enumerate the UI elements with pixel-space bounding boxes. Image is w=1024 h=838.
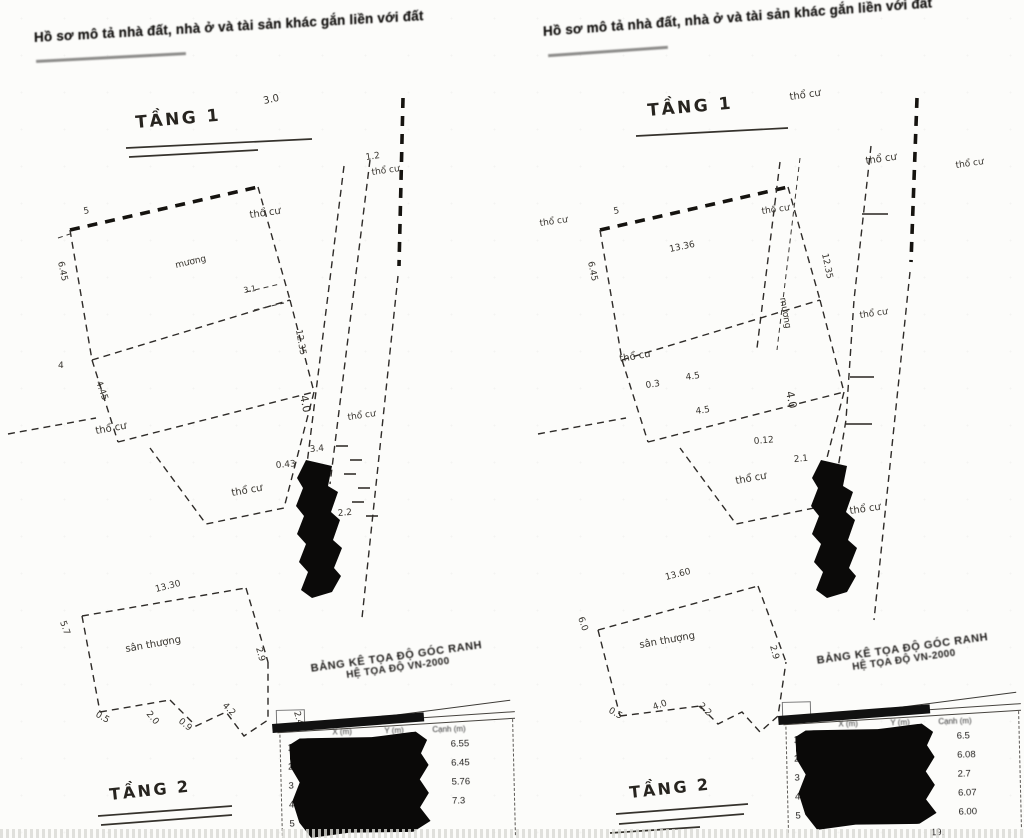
dimension-label: 4.0 [297,394,313,414]
parcel-edge [150,392,314,524]
dimension-label: 3.1 [243,284,257,295]
dimension-label: 4.0 [652,698,669,712]
parcel-edge [600,187,788,230]
terrace-edge [598,586,758,630]
edge-length-value: 6.55 [451,737,513,750]
parcel-edge [820,300,844,392]
column-header-edge: Cạnh (m) [938,716,972,726]
dimension-label: 13.36 [669,240,697,255]
dimension-label: 3.0 [262,93,280,107]
floor1-left-drawing: TẦNG 1 53.0thổ cư1.2thổ cưmương3.16.4544… [8,93,403,618]
dimension-label: 13.30 [154,579,182,595]
dimension-label: 0.43 [275,459,296,471]
parcel-edge [600,230,622,360]
parcel-edge [622,360,648,442]
road-line [330,160,370,484]
title-underline [636,128,788,136]
dimension-label: 5 [613,206,620,217]
area-label: sân thượng [638,629,695,651]
floor-title: TẦNG 1 [134,102,221,133]
floor1-left-labels: 53.0thổ cư1.2thổ cưmương3.16.4544.454.01… [55,93,402,519]
floor2-right-labels: 13.606.0sân thượng0.54.02.22.9 [575,567,780,722]
dimension-label: 4.0 [783,390,799,410]
title-underline [619,814,744,824]
terrace-step-edge [700,662,786,732]
boundary-stub [58,234,70,238]
dimension-label: 3.4 [309,444,324,455]
dimension-label: 6.0 [575,616,589,633]
parcel-edge [70,230,92,360]
edge-length-value: 6.07 [958,786,1020,799]
road-bold-line [399,98,403,266]
floor1-right-labels: 5thổ cư13.36thổ cưthổ cưthổ cưmương6.450… [539,86,986,517]
dimension-label: 4.45 [93,380,109,402]
terrace-edge [598,630,620,716]
dimension-label: 4.5 [695,405,711,417]
parcel-edge [118,392,314,442]
land-use-label: thổ cư [849,500,883,517]
edge-length-value: 6.00 [958,805,1020,818]
redaction-blob [795,723,939,831]
edge-length-value: 6.5 [957,729,1019,742]
dimension-label: 0.5 [607,706,624,722]
edge-length-value: 7.3 [452,794,514,807]
table-box: X (m) Y (m) Cạnh (m) 1 6.55 2 6.45 3 5.7… [279,719,516,838]
boundary-extension [538,418,626,434]
dimension-label: 5.7 [57,620,71,637]
redaction-blob [811,460,857,598]
area-label: sân thượng [124,633,181,655]
dimension-label: 12.35 [293,329,307,356]
land-use-label: thổ cư [859,306,890,321]
dimension-label: 13.60 [664,567,692,583]
land-use-label: thổ cư [230,481,264,499]
land-use-label: thổ cư [955,156,986,171]
table-box: X (m) Y (m) Cạnh (m) 1 6.5 2 6.08 3 2.7 [785,711,1022,833]
road-bold-line [911,98,917,262]
dimension-label: 0.3 [645,379,661,391]
road-line [838,146,871,468]
terrace-edge [100,700,170,712]
dimension-label: 6.45 [585,261,599,283]
dimension-label: 1.2 [365,151,381,163]
parcel-edge [70,187,258,230]
land-use-label: thổ cư [734,469,768,487]
terrace-edge [82,616,100,712]
parcel-edge [648,392,844,442]
land-use-label: thổ cư [789,86,823,103]
edge-length-value: 5.76 [451,775,513,788]
land-use-label: thổ cư [371,163,402,178]
road-line [306,166,344,472]
title-underline [616,804,748,814]
column-header-x: X (m) [838,719,858,728]
dimension-label: 4.5 [685,371,701,383]
land-use-label: thổ cư [347,408,378,423]
floor-title: TẦNG 2 [628,773,711,802]
title-underline [129,150,258,157]
parcel-edge [92,300,290,360]
dimension-label: 0.9 [176,717,194,734]
road-line [362,276,398,618]
edge-length-value: 2.7 [957,767,1019,780]
edge-length-value: 6.45 [451,756,513,769]
dimension-label: 4 [58,361,64,371]
land-use-label: thổ cư [539,214,570,229]
floor2-right-drawing: TẦNG 2 13.606.0sân thượng0.54.02.22.9 [575,567,786,833]
scan-edge-artifact [0,829,1024,838]
dimension-label: mương [174,254,207,271]
dimension-label: 0.12 [753,435,774,447]
land-use-label: thổ cư [618,347,652,365]
land-use-label: thổ cư [249,204,283,221]
dimension-label: 0.5 [94,710,111,726]
dimension-label: 6.45 [55,261,69,283]
dimension-label: mương [777,297,792,330]
redaction-blob [289,731,433,838]
road-line [874,272,910,620]
redaction-blob [296,460,342,598]
parcel-edge [788,187,820,300]
title-underline [98,806,232,816]
floor-title: TẦNG 2 [108,775,191,804]
parcel-edge [258,187,290,300]
dimension-label: 2.1 [793,454,808,465]
land-use-label: thổ cư [761,202,792,217]
edge-length-value: 6.08 [957,748,1019,761]
column-header-x: X (m) [332,727,352,736]
floor1-right-drawing: TẦNG 1 5thổ cư13.36thổ cưthổ cưthổ cưmươ… [538,86,986,620]
scanned-survey-document: Hồ sơ mô tả nhà đất, nhà ở và tài sản kh… [0,0,1024,838]
dimension-label: 4.2 [220,701,237,718]
title-underline [101,815,232,825]
floor-title: TẦNG 1 [646,90,733,121]
boundary-extension [8,418,96,434]
dimension-label: 2.2 [337,508,352,519]
alley-line [757,162,780,348]
column-header-edge: Cạnh (m) [432,724,466,734]
dimension-label: 12.35 [819,253,834,280]
parcel-edge [622,300,820,360]
title-underline [126,139,312,148]
road-tick-marks [336,446,378,516]
dimension-label: 2.0 [144,710,161,728]
dimension-label: 5 [83,206,90,217]
